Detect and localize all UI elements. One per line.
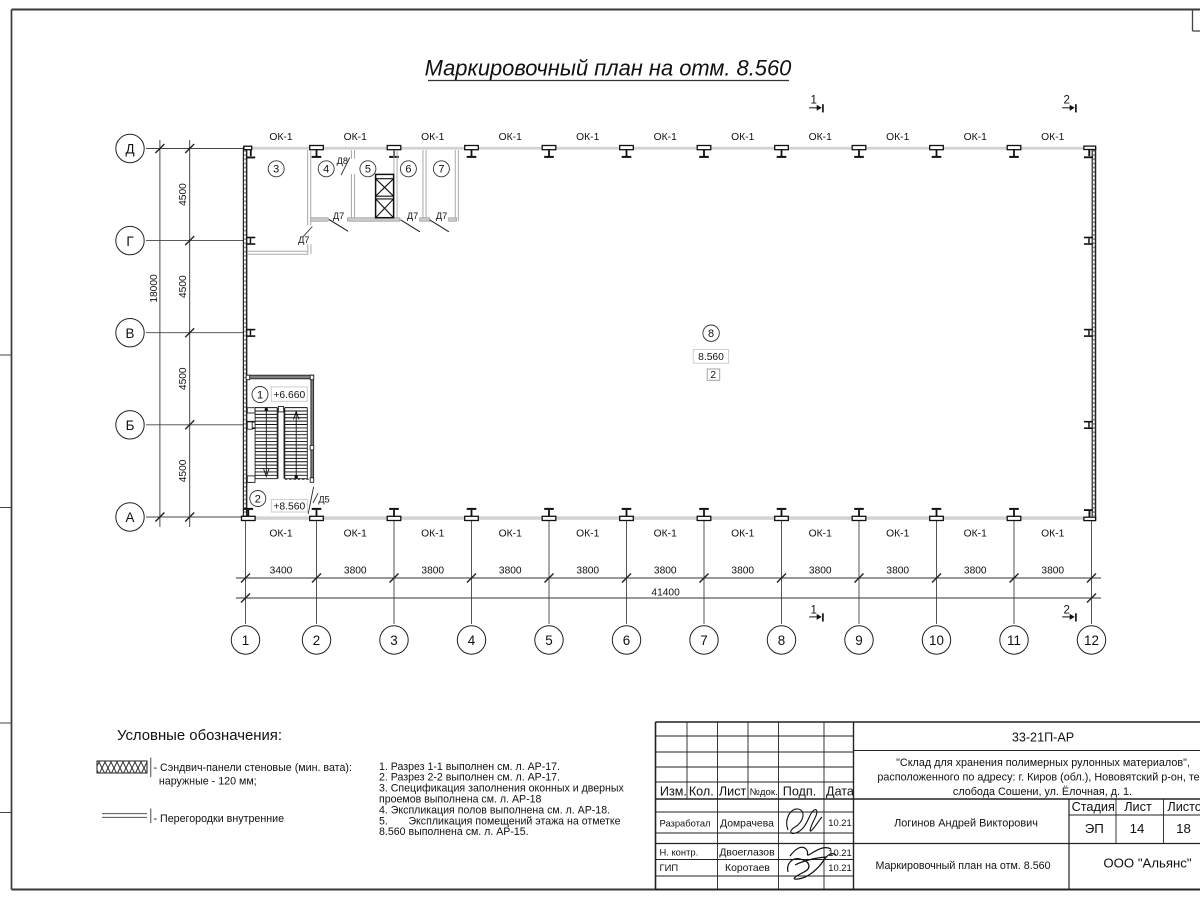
svg-text:3800: 3800: [964, 565, 987, 576]
svg-text:Стадия: Стадия: [1072, 800, 1115, 814]
svg-text:ЭП: ЭП: [1085, 821, 1104, 836]
svg-text:ОК-1: ОК-1: [269, 132, 292, 143]
svg-text:4500: 4500: [178, 183, 189, 206]
svg-text:3800: 3800: [576, 565, 599, 576]
svg-text:слобода Сошени, ул. Ёлочная, д: слобода Сошени, ул. Ёлочная, д. 1.: [953, 786, 1132, 798]
svg-text:ОК-1: ОК-1: [499, 529, 522, 540]
svg-text:В: В: [126, 326, 135, 341]
svg-text:Д5: Д5: [318, 495, 329, 505]
svg-text:Дата: Дата: [826, 785, 854, 799]
svg-text:12: 12: [1084, 633, 1099, 648]
svg-text:4500: 4500: [178, 275, 189, 298]
svg-text:Домрачева: Домрачева: [720, 819, 774, 830]
svg-text:1: 1: [810, 95, 816, 107]
svg-text:2: 2: [313, 633, 320, 648]
svg-text:ОК-1: ОК-1: [269, 529, 292, 540]
svg-text:Лист: Лист: [1124, 800, 1152, 814]
svg-text:ОК-1: ОК-1: [809, 132, 832, 143]
svg-text:Коротаев: Коротаев: [725, 863, 770, 874]
svg-text:наружные - 120 мм;: наружные - 120 мм;: [159, 776, 257, 788]
svg-text:2: 2: [255, 493, 261, 505]
svg-text:ОК-1: ОК-1: [886, 132, 909, 143]
svg-text:"Склад для хранения полимерных: "Склад для хранения полимерных рулонных …: [896, 757, 1190, 769]
svg-text:7: 7: [700, 633, 707, 648]
svg-text:4500: 4500: [178, 459, 189, 482]
svg-text:8: 8: [778, 633, 785, 648]
svg-text:3800: 3800: [654, 565, 677, 576]
svg-text:4: 4: [468, 633, 476, 648]
svg-text:ОК-1: ОК-1: [1041, 529, 1064, 540]
svg-text:8.560: 8.560: [698, 352, 724, 363]
svg-text:ОК-1: ОК-1: [964, 132, 987, 143]
svg-text:ОК-1: ОК-1: [654, 529, 677, 540]
svg-text:ОК-1: ОК-1: [421, 132, 444, 143]
svg-text:7: 7: [438, 164, 444, 176]
svg-text:ООО "Альянс": ООО "Альянс": [1103, 856, 1191, 871]
svg-text:Кол.: Кол.: [689, 785, 714, 799]
svg-text:8.560 выполнена см. л. АР-15.: 8.560 выполнена см. л. АР-15.: [379, 826, 529, 838]
svg-text:Д7: Д7: [436, 211, 447, 221]
svg-text:Лист: Лист: [719, 785, 747, 799]
svg-text:6: 6: [405, 164, 411, 176]
svg-text:ОК-1: ОК-1: [731, 132, 754, 143]
svg-text:4500: 4500: [178, 367, 189, 390]
svg-text:5: 5: [545, 633, 552, 648]
svg-text:Д7: Д7: [333, 211, 344, 221]
svg-text:Изм.: Изм.: [660, 785, 687, 799]
svg-text:Условные обозначения:: Условные обозначения:: [117, 728, 282, 744]
svg-text:3800: 3800: [499, 565, 522, 576]
svg-text:10.21: 10.21: [828, 862, 851, 873]
svg-text:расположенного по адресу: г. К: расположенного по адресу: г. Киров (обл.…: [877, 772, 1200, 784]
svg-text:ОК-1: ОК-1: [344, 529, 367, 540]
svg-text:Разработал: Разработал: [660, 818, 711, 829]
svg-text:8: 8: [708, 328, 714, 340]
svg-text:10: 10: [929, 633, 944, 648]
svg-text:3800: 3800: [344, 565, 367, 576]
svg-text:3: 3: [390, 633, 397, 648]
svg-text:ОК-1: ОК-1: [731, 529, 754, 540]
svg-text:9: 9: [855, 633, 862, 648]
svg-text:5: 5: [365, 164, 371, 176]
svg-text:10.21: 10.21: [828, 847, 851, 858]
svg-text:ОК-1: ОК-1: [421, 529, 444, 540]
svg-text:№док.: №док.: [750, 787, 778, 798]
svg-text:ГИП: ГИП: [660, 862, 679, 873]
svg-text:+8.560: +8.560: [273, 501, 305, 512]
svg-text:Маркировочный план на отм. 8.5: Маркировочный план на отм. 8.560: [425, 56, 792, 81]
svg-text:ОК-1: ОК-1: [344, 132, 367, 143]
svg-text:А: А: [126, 510, 135, 525]
svg-text:1: 1: [242, 633, 249, 648]
svg-text:ОК-1: ОК-1: [964, 529, 987, 540]
svg-text:Подп.: Подп.: [783, 785, 816, 799]
svg-text:ОК-1: ОК-1: [886, 529, 909, 540]
svg-text:4: 4: [323, 164, 329, 176]
svg-text:ОК-1: ОК-1: [654, 132, 677, 143]
svg-text:3800: 3800: [1041, 565, 1064, 576]
svg-text:14: 14: [1130, 821, 1145, 836]
svg-text:ОК-1: ОК-1: [576, 132, 599, 143]
svg-text:Двоеглазов: Двоеглазов: [719, 848, 775, 859]
svg-text:Листов: Листов: [1167, 800, 1200, 814]
svg-text:6: 6: [623, 633, 630, 648]
svg-text:Д7: Д7: [407, 211, 418, 221]
svg-text:ОК-1: ОК-1: [809, 529, 832, 540]
svg-text:11: 11: [1007, 633, 1021, 648]
svg-text:33-21П-АР: 33-21П-АР: [1012, 730, 1074, 744]
svg-text:10.21: 10.21: [828, 817, 851, 828]
svg-text:1: 1: [257, 389, 263, 401]
svg-text:3400: 3400: [270, 565, 293, 576]
svg-text:Б: Б: [126, 418, 135, 433]
svg-text:18000: 18000: [149, 274, 160, 303]
svg-text:1: 1: [810, 605, 816, 617]
svg-text:Маркировочный план на отм. 8.5: Маркировочный план на отм. 8.560: [875, 860, 1050, 872]
svg-text:Г: Г: [126, 234, 133, 249]
svg-text:ОК-1: ОК-1: [1041, 132, 1064, 143]
svg-text:+6.660: +6.660: [273, 390, 305, 401]
svg-text:- Перегородки внутренние: - Перегородки внутренние: [154, 813, 285, 825]
svg-text:ОК-1: ОК-1: [499, 132, 522, 143]
svg-text:3800: 3800: [731, 565, 754, 576]
svg-text:18: 18: [1176, 821, 1191, 836]
svg-text:Н. контр.: Н. контр.: [660, 846, 699, 857]
svg-text:Д: Д: [125, 142, 134, 157]
svg-text:3800: 3800: [421, 565, 444, 576]
svg-text:- Сэндвич-панели стеновые (мин: - Сэндвич-панели стеновые (мин. вата):: [154, 762, 352, 774]
svg-text:Логинов Андрей Викторович: Логинов Андрей Викторович: [894, 818, 1038, 830]
svg-text:2: 2: [1063, 95, 1069, 107]
svg-text:ОК-1: ОК-1: [576, 529, 599, 540]
svg-text:3800: 3800: [886, 565, 909, 576]
svg-text:3: 3: [273, 164, 279, 176]
svg-text:3800: 3800: [809, 565, 832, 576]
svg-text:2: 2: [1063, 605, 1069, 617]
svg-text:41400: 41400: [651, 587, 680, 598]
svg-text:2: 2: [710, 370, 716, 381]
